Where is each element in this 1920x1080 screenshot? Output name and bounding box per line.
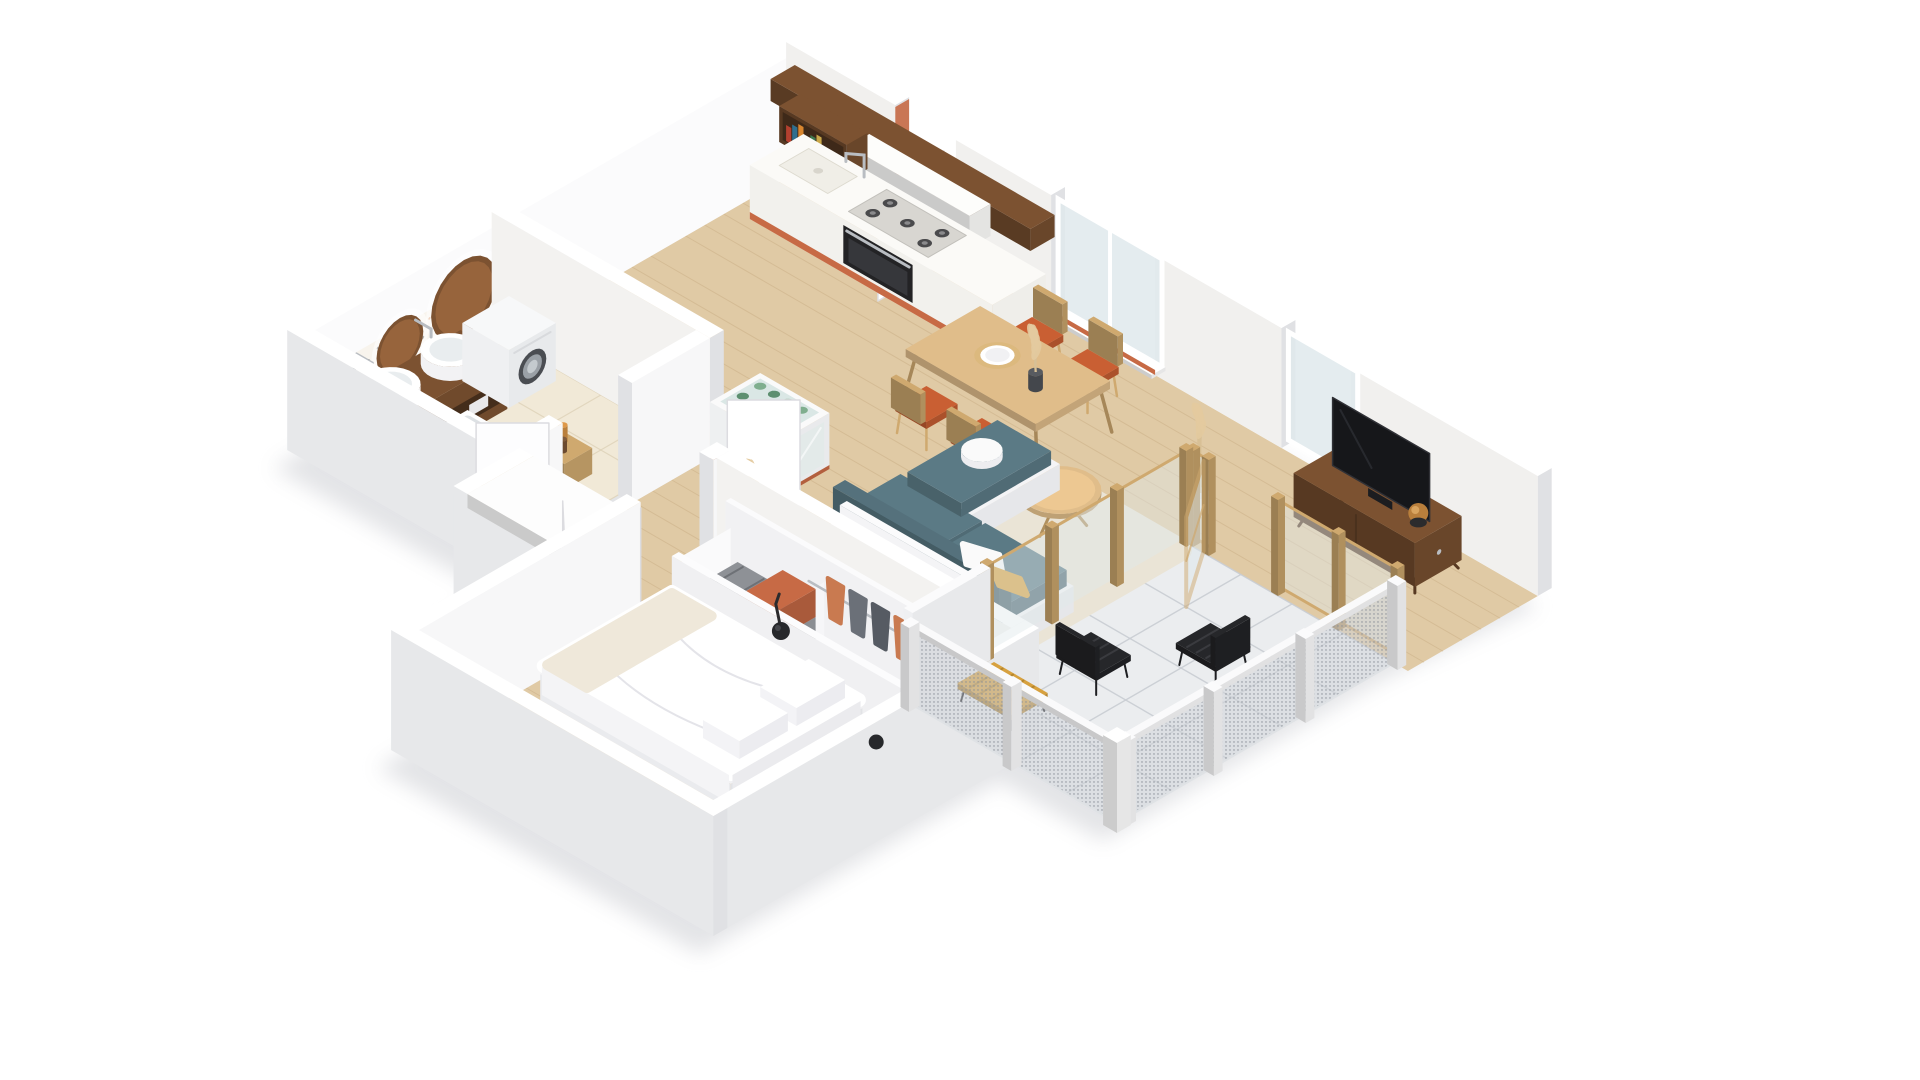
render-canvas (0, 0, 1920, 1080)
plate-with-placemat (974, 342, 1021, 369)
apartment-render (0, 0, 1920, 1080)
wall-arm-lamp-2 (869, 735, 884, 750)
globe-lamp (1408, 503, 1428, 527)
